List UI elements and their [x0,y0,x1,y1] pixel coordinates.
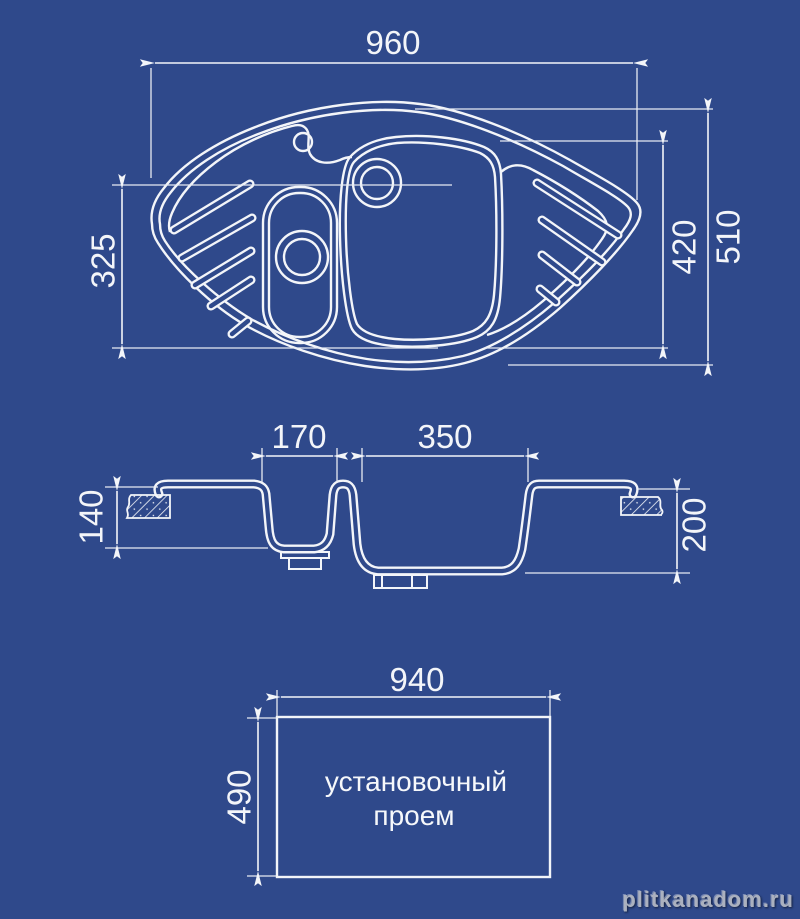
watermark: plitkanadom.ru [622,887,794,913]
drawing-canvas: 960 325 420 510 170 350 140 200 940 490 … [0,0,800,919]
cutout-view [277,717,550,877]
small-bowl-drain-section [281,552,329,569]
dim-text-960: 960 [365,24,420,61]
dim-text-510: 510 [710,209,747,264]
sink-spec-drawing: 960 325 420 510 170 350 140 200 940 490 … [0,0,800,919]
dim-text-940: 940 [389,661,444,698]
countertop-right [621,497,663,515]
main-bowl-inner [346,142,497,339]
dim-text-140: 140 [73,489,110,544]
section-shell-outer [158,484,634,571]
dim-text-420: 420 [666,219,703,274]
dim-text-490: 490 [221,769,258,824]
cutout-label-line1: установочный [325,766,507,797]
main-bowl-drain-inner [361,167,393,199]
main-bowl-outer [340,136,503,347]
countertop-left [127,495,170,518]
dim-text-200: 200 [676,497,713,552]
main-bowl-drain-section [374,575,427,588]
cutout-label-line2: проем [373,800,454,831]
dim-text-350: 350 [417,418,472,455]
dim-text-325: 325 [85,233,122,288]
dim-text-170: 170 [271,418,326,455]
dimension-lines [117,63,708,871]
cutout-rect [277,717,550,877]
small-bowl-drain-inner [284,239,320,275]
section-shell-core [158,484,634,571]
